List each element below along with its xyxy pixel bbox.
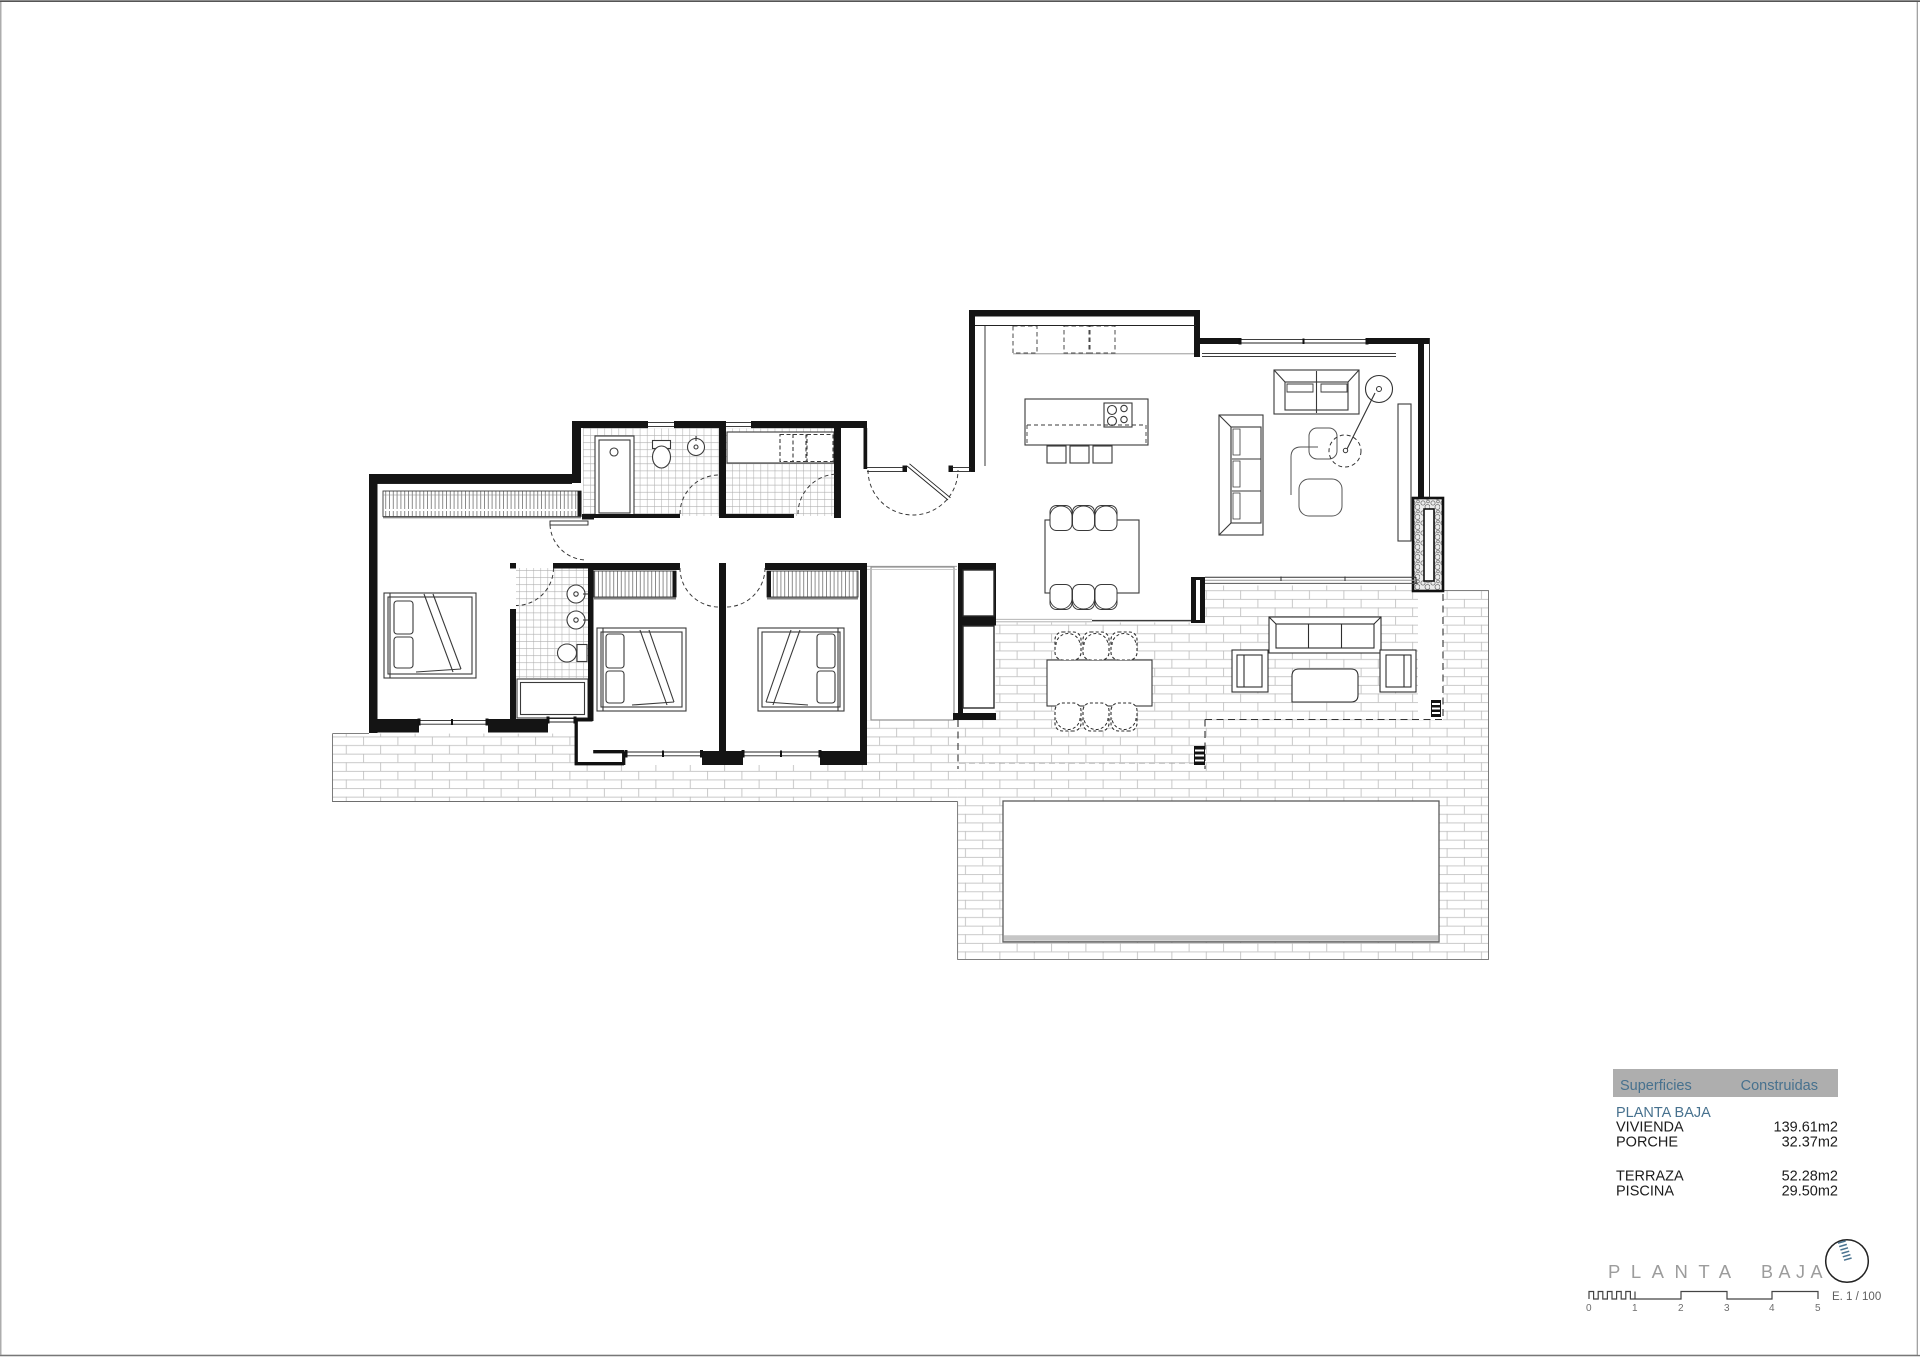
svg-text:3: 3 <box>1724 1303 1730 1314</box>
svg-text:Superficies: Superficies <box>1620 1078 1692 1094</box>
svg-text:PORCHE: PORCHE <box>1616 1135 1678 1151</box>
svg-text:5: 5 <box>1815 1303 1821 1314</box>
svg-text:139.61m2: 139.61m2 <box>1774 1120 1839 1136</box>
svg-text:2: 2 <box>1678 1303 1684 1314</box>
svg-text:PISCINA: PISCINA <box>1616 1184 1674 1200</box>
svg-text:BAJA: BAJA <box>1761 1262 1828 1282</box>
svg-text:TERRAZA: TERRAZA <box>1616 1169 1684 1185</box>
svg-text:E. 1 / 100: E. 1 / 100 <box>1832 1291 1881 1303</box>
svg-text:0: 0 <box>1586 1303 1592 1314</box>
svg-text:4: 4 <box>1769 1303 1775 1314</box>
svg-text:1: 1 <box>1632 1303 1638 1314</box>
svg-text:Construidas: Construidas <box>1741 1078 1818 1094</box>
svg-text:52.28m2: 52.28m2 <box>1782 1169 1838 1185</box>
svg-text:PLANTA: PLANTA <box>1608 1261 1742 1282</box>
svg-text:32.37m2: 32.37m2 <box>1782 1135 1838 1151</box>
svg-text:29.50m2: 29.50m2 <box>1782 1184 1838 1200</box>
svg-text:VIVIENDA: VIVIENDA <box>1616 1120 1684 1136</box>
